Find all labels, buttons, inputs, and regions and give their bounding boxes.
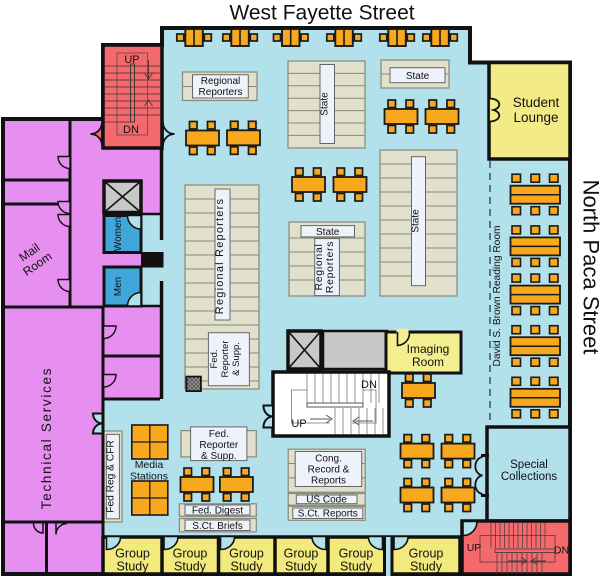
- svg-text:US Code: US Code: [306, 495, 347, 506]
- svg-text:Reporters: Reporters: [324, 241, 336, 293]
- svg-text:Fed.: Fed.: [209, 349, 220, 368]
- svg-text:Fed Reg & CFR: Fed Reg & CFR: [106, 440, 117, 512]
- svg-text:S.Ct. Briefs: S.Ct. Briefs: [192, 521, 243, 532]
- svg-text:Lounge: Lounge: [513, 110, 558, 125]
- svg-text:Reporter: Reporter: [199, 440, 239, 451]
- svg-text:S.Ct. Reports: S.Ct. Reports: [298, 509, 358, 520]
- svg-text:Group: Group: [115, 547, 150, 561]
- svg-text:Group: Group: [339, 547, 374, 561]
- svg-text:DN: DN: [361, 379, 377, 391]
- svg-text:Study: Study: [174, 560, 207, 574]
- svg-text:Study: Study: [340, 560, 373, 574]
- svg-text:Fed. Digest: Fed. Digest: [192, 506, 243, 517]
- svg-text:Regional Reporters: Regional Reporters: [214, 198, 226, 314]
- svg-text:State: State: [406, 71, 430, 82]
- svg-text:Group: Group: [409, 547, 444, 561]
- svg-text:Imaging: Imaging: [407, 342, 450, 356]
- svg-text:& Supp.: & Supp.: [231, 342, 242, 376]
- svg-text:UP: UP: [467, 542, 482, 554]
- svg-text:UP: UP: [291, 418, 306, 430]
- svg-text:North Paca Street: North Paca Street: [579, 180, 600, 355]
- svg-text:Men: Men: [113, 277, 124, 296]
- svg-text:Reporter: Reporter: [220, 341, 231, 378]
- svg-text:Women: Women: [113, 217, 124, 251]
- svg-text:DN: DN: [554, 545, 569, 557]
- svg-text:Reporters: Reporters: [199, 87, 243, 98]
- svg-text:Record &: Record &: [308, 465, 350, 476]
- svg-text:State: State: [320, 92, 331, 116]
- svg-text:Student: Student: [513, 95, 560, 110]
- svg-text:UP: UP: [124, 54, 139, 66]
- svg-text:State: State: [411, 209, 422, 233]
- svg-text:David S. Brown Reading Room: David S. Brown Reading Room: [492, 226, 503, 367]
- svg-text:Collections: Collections: [501, 471, 557, 483]
- svg-text:Media: Media: [135, 459, 164, 471]
- svg-text:Regional: Regional: [201, 76, 240, 87]
- svg-text:Study: Study: [117, 560, 150, 574]
- svg-text:State: State: [316, 227, 340, 238]
- svg-text:Cong.: Cong.: [315, 454, 342, 465]
- svg-text:Study: Study: [410, 560, 443, 574]
- svg-text:Technical Services: Technical Services: [39, 367, 54, 509]
- svg-text:Study: Study: [285, 560, 318, 574]
- svg-text:Room: Room: [412, 355, 444, 369]
- svg-text:Fed.: Fed.: [209, 429, 229, 440]
- svg-text:Group: Group: [284, 547, 319, 561]
- svg-text:DN: DN: [123, 124, 139, 136]
- svg-text:& Supp.: & Supp.: [201, 451, 237, 462]
- svg-text:Group: Group: [229, 547, 264, 561]
- svg-text:Special: Special: [510, 459, 548, 471]
- svg-text:Group: Group: [173, 547, 208, 561]
- svg-text:Study: Study: [231, 560, 264, 574]
- svg-text:Reports: Reports: [311, 476, 346, 487]
- svg-text:West Fayette Street: West Fayette Street: [229, 2, 414, 25]
